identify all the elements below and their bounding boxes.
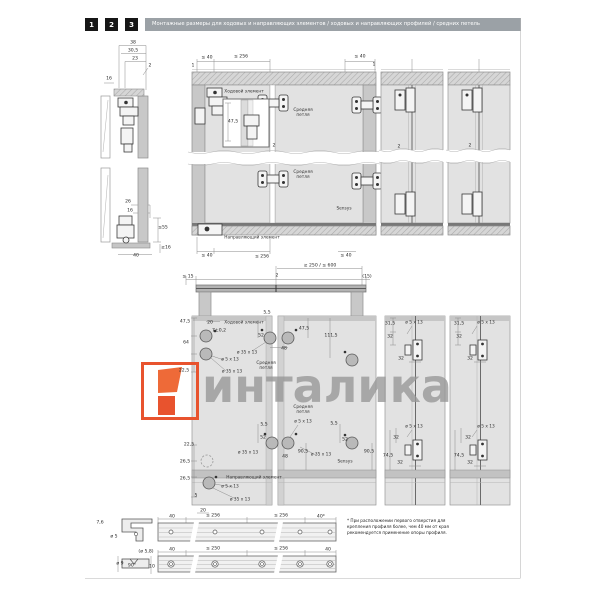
catalog-page: 1 2 3 Монтажные размеры для ходовых и на… [0, 0, 600, 600]
top-profile-crosssection [122, 519, 152, 541]
side-view-lower [101, 168, 161, 255]
door-panel-elevation [446, 59, 512, 235]
top-profile-plan [158, 523, 336, 541]
main-elevation [188, 59, 382, 254]
guide-profile-plan [158, 556, 336, 572]
drilling-plan [191, 316, 376, 505]
drilling-plan-column [385, 316, 445, 505]
technical-drawing [0, 0, 600, 600]
footnote: * При расположении первого отверстия для… [347, 518, 449, 536]
top-profile-section [186, 266, 370, 319]
guide-profile-crosssection [122, 559, 149, 568]
door-panel-elevation [379, 59, 445, 235]
profile-strips [118, 513, 336, 574]
side-view-upper [101, 46, 148, 159]
drilling-plan-column [450, 316, 510, 505]
